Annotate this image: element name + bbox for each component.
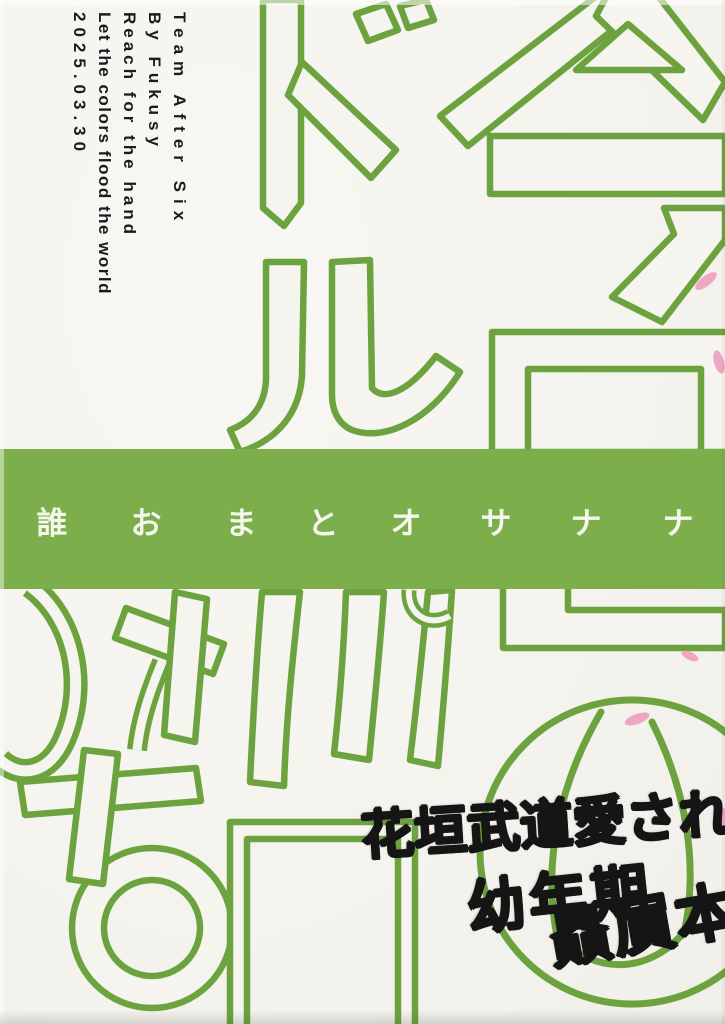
tagline-line-1: Reach for the hand <box>117 12 142 452</box>
glyph-no-fragment <box>0 586 76 771</box>
scan-edge-left <box>0 0 4 1024</box>
author-credit: By Fukusy <box>142 12 167 452</box>
band-char: 誰 <box>34 498 70 543</box>
circle-name: Team After Six <box>167 12 192 452</box>
scan-edge-bottom <box>0 1010 725 1024</box>
band-char: ナ <box>568 498 604 543</box>
scan-edge-top <box>0 0 725 5</box>
obi-band <box>0 449 725 589</box>
glyph-ru <box>230 260 460 452</box>
glyph-chi <box>20 750 232 1008</box>
release-date: 2025.03.30 <box>67 12 92 452</box>
band-char: と <box>305 498 341 543</box>
credit-block: Team After Six By Fukusy Reach for the h… <box>60 12 192 452</box>
band-char: ま <box>223 498 259 543</box>
tagline-line-2: Let the colors flood the world <box>92 12 117 452</box>
glyph-ima <box>440 0 725 322</box>
glyph-hi-top <box>492 332 725 452</box>
band-char: サ <box>478 498 514 543</box>
band-char: お <box>128 498 164 543</box>
band-char: ナ <box>660 498 696 543</box>
glyph-do <box>263 0 434 226</box>
band-char: オ <box>388 498 424 543</box>
back-cover-page: Team After Six By Fukusy Reach for the h… <box>0 0 725 1024</box>
